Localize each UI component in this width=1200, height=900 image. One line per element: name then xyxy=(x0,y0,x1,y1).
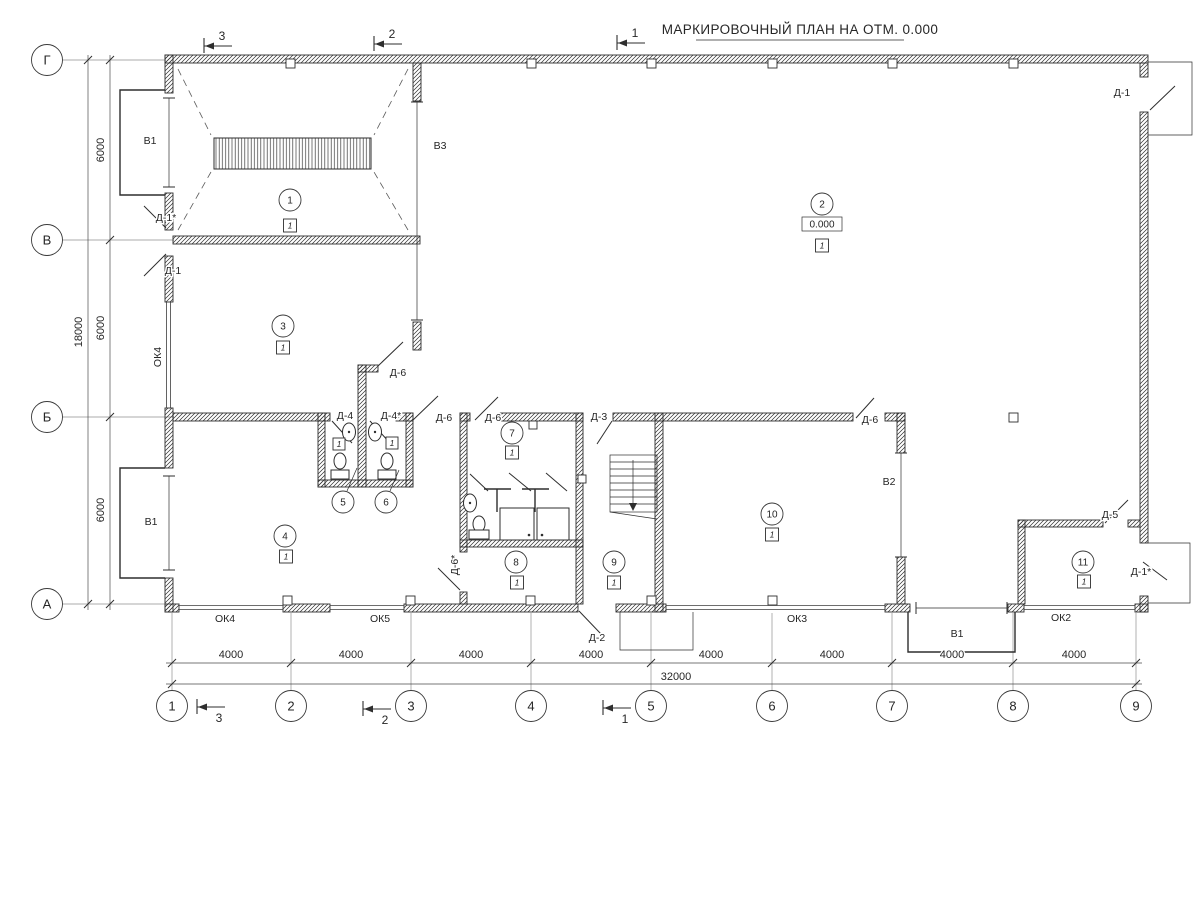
axis-row-v: В xyxy=(43,233,52,248)
dim-6000-2: 6000 xyxy=(95,316,107,340)
window-ok5-bottom xyxy=(330,606,404,610)
window-ok2-bottom xyxy=(1024,606,1135,610)
label-door-d3: Д-3 xyxy=(591,411,608,423)
axis-col-1: 1 xyxy=(168,699,175,714)
room-number: 4 xyxy=(282,532,288,543)
room-number: 1 xyxy=(287,196,293,207)
dimensions-bottom: 4000 4000 4000 4000 4000 4000 4000 4000 … xyxy=(166,649,1142,688)
floor-type: 1 xyxy=(284,552,289,562)
axis-row-b: Б xyxy=(43,410,52,425)
section-mark-3-top: 3 xyxy=(204,29,232,53)
elevation-mark: 0.000 xyxy=(809,220,834,231)
axis-col-5: 5 xyxy=(647,699,654,714)
label-window-ok5: ОК5 xyxy=(370,613,390,625)
label-door-d1a-left: Д-1* xyxy=(156,212,177,224)
label-gate-v1-top: В1 xyxy=(144,135,157,147)
dim-6000-1: 6000 xyxy=(95,138,107,162)
room-marks: 1 1 2 0.000 1 3 1 4 1 5 1 6 1 7 1 xyxy=(272,189,1094,589)
stair-direction-arrow xyxy=(629,503,637,511)
label-door-d1-top: Д-1 xyxy=(1114,87,1131,99)
room-mark-4: 4 1 xyxy=(274,525,296,563)
label-door-d2: Д-2 xyxy=(589,632,606,644)
floor-type: 1 xyxy=(820,241,825,251)
dim-4000-4: 4000 xyxy=(579,649,603,661)
floor-type: 1 xyxy=(288,221,293,231)
section-mark-2-bottom: 2 xyxy=(363,701,391,727)
label-door-d6-corridor: Д-6 xyxy=(436,412,453,424)
room-number: 2 xyxy=(819,200,825,211)
axis-col-7: 7 xyxy=(888,699,895,714)
axis-bubbles-bottom: 1 2 3 4 5 6 7 8 9 xyxy=(157,691,1152,722)
section-number: 3 xyxy=(219,29,226,43)
dim-32000: 32000 xyxy=(661,671,692,683)
dim-4000-8: 4000 xyxy=(1062,649,1086,661)
floor-type: 1 xyxy=(337,439,342,449)
axis-col-2: 2 xyxy=(287,699,294,714)
dim-18000: 18000 xyxy=(73,317,85,348)
drawing-title: МАРКИРОВОЧНЫЙ ПЛАН НА ОТМ. 0.000 xyxy=(662,22,939,37)
label-gate-v1-left: В1 xyxy=(145,516,158,528)
floor-type: 1 xyxy=(612,578,617,588)
window-ok3-bottom xyxy=(666,606,885,610)
label-door-d4a: Д-4* xyxy=(381,410,402,422)
dim-4000-5: 4000 xyxy=(699,649,723,661)
room-number: 5 xyxy=(340,498,346,509)
label-door-d5: Д-5 xyxy=(1102,509,1119,521)
column-marks xyxy=(283,59,1018,605)
label-window-v3: В3 xyxy=(434,140,447,152)
window-v2 xyxy=(895,453,907,557)
window-ok4-bottom xyxy=(179,606,283,610)
section-mark-2-top: 2 xyxy=(374,27,402,51)
gate-v1-bottom xyxy=(908,602,1015,652)
section-number: 1 xyxy=(622,712,629,726)
label-window-ok2: ОК2 xyxy=(1051,612,1071,624)
dim-4000-3: 4000 xyxy=(459,649,483,661)
stairs xyxy=(610,455,657,519)
dim-4000-6: 4000 xyxy=(820,649,844,661)
dim-6000-3: 6000 xyxy=(95,498,107,522)
section-mark-3-bottom: 3 xyxy=(197,699,225,725)
floor-type: 1 xyxy=(770,530,775,540)
windows-layer xyxy=(120,90,1135,652)
dim-4000-2: 4000 xyxy=(339,649,363,661)
label-door-d6-room3: Д-6 xyxy=(390,367,407,379)
label-door-d1-left: Д-1 xyxy=(165,265,182,277)
room-mark-11: 11 1 xyxy=(1072,551,1094,588)
label-window-ok4: ОК4 xyxy=(215,613,235,625)
window-ok4-left xyxy=(167,302,171,408)
axis-col-9: 9 xyxy=(1132,699,1139,714)
label-door-d6-room7: Д-6 xyxy=(485,412,502,424)
label-door-d6-room10: Д-6 xyxy=(862,414,879,426)
room-number: 3 xyxy=(280,322,286,333)
label-window-ok3: ОК3 xyxy=(787,613,807,625)
section-number: 2 xyxy=(389,27,396,41)
section-number: 1 xyxy=(632,26,639,40)
dim-4000-1: 4000 xyxy=(219,649,243,661)
dimensions-left: 6000 6000 6000 18000 xyxy=(73,55,114,610)
room-mark-2: 2 0.000 1 xyxy=(802,193,842,252)
floor-type: 1 xyxy=(515,578,520,588)
room-number: 11 xyxy=(1078,558,1089,569)
dim-4000-7: 4000 xyxy=(940,649,964,661)
element-labels: Д-1 Д-1* Д-1 Д-6 Д-4 Д-4* Д-6 Д-6 Д-3 Д-… xyxy=(144,87,1152,644)
room-mark-3: 3 1 xyxy=(272,315,294,354)
axis-col-8: 8 xyxy=(1009,699,1016,714)
axis-bubbles-left: Г В Б А xyxy=(32,45,63,620)
room-mark-10: 10 1 xyxy=(761,503,783,541)
room-mark-7: 7 1 xyxy=(501,422,523,459)
section-mark-1-top: 1 xyxy=(617,26,645,50)
room-mark-9: 9 1 xyxy=(603,551,625,589)
section-marks: 3 2 1 3 2 1 xyxy=(197,26,645,727)
room-number: 9 xyxy=(611,558,617,569)
room-number: 10 xyxy=(766,510,778,521)
label-window-ok4-left: ОК4 xyxy=(152,347,164,367)
label-gate-v1-bottom: В1 xyxy=(951,628,964,640)
room-number: 8 xyxy=(513,558,519,569)
label-window-v2: В2 xyxy=(883,476,896,488)
axis-col-6: 6 xyxy=(768,699,775,714)
section-number: 3 xyxy=(216,711,223,725)
floor-type: 1 xyxy=(390,438,395,448)
room-mark-8: 8 1 xyxy=(505,551,527,589)
room-mark-1: 1 1 xyxy=(279,189,301,232)
room-number: 6 xyxy=(383,498,389,509)
floor-plan-canvas: МАРКИРОВОЧНЫЙ ПЛАН НА ОТМ. 0.000 xyxy=(0,0,1200,900)
axis-col-4: 4 xyxy=(527,699,534,714)
label-door-d6a: Д-6* xyxy=(449,555,461,576)
label-door-d4: Д-4 xyxy=(337,410,354,422)
title-block: МАРКИРОВОЧНЫЙ ПЛАН НА ОТМ. 0.000 xyxy=(662,22,939,40)
floor-type: 1 xyxy=(1082,577,1087,587)
label-door-d1a-right: Д-1* xyxy=(1131,566,1152,578)
drawing-sheet: МАРКИРОВОЧНЫЙ ПЛАН НА ОТМ. 0.000 xyxy=(0,0,1200,900)
window-v3 xyxy=(411,102,423,320)
room-number: 7 xyxy=(509,429,515,440)
axis-row-a: А xyxy=(43,597,52,612)
section-number: 2 xyxy=(382,713,389,727)
floor-type: 1 xyxy=(510,448,515,458)
floor-type: 1 xyxy=(281,343,286,353)
section-mark-1-bottom: 1 xyxy=(603,700,631,726)
axis-row-g: Г xyxy=(43,53,50,68)
axis-col-3: 3 xyxy=(407,699,414,714)
